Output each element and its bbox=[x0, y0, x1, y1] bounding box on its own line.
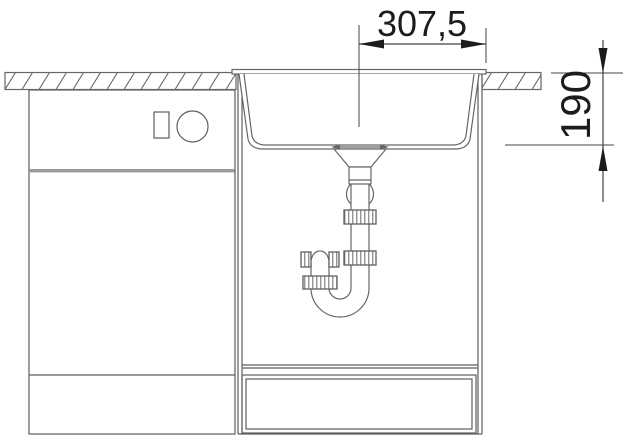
left-cabinet-door-divider bbox=[30, 169, 235, 172]
left-cabinet-outline bbox=[29, 90, 235, 434]
riser-dome-cap bbox=[311, 251, 329, 263]
countertop-right-section bbox=[482, 73, 541, 90]
drain-neck bbox=[349, 167, 371, 184]
outlet-pipe-body bbox=[351, 184, 369, 288]
plinth-panel-outer bbox=[242, 375, 476, 433]
drain-trap-assembly bbox=[301, 145, 389, 318]
pipe-nut-lower bbox=[344, 251, 376, 265]
dimension-label-bowl-depth: 190 bbox=[552, 70, 599, 140]
arrow-down-icon bbox=[599, 48, 608, 73]
trap-u-bend-inner bbox=[329, 288, 351, 299]
control-knob-icon bbox=[177, 111, 208, 142]
plinth-panel-inner bbox=[246, 379, 472, 429]
drain-funnel bbox=[334, 149, 386, 167]
drawing-canvas: 307,5 190 bbox=[0, 0, 625, 442]
riser-nut bbox=[303, 276, 337, 289]
countertop-left-section bbox=[5, 73, 236, 90]
pipe-nut-upper bbox=[344, 210, 376, 224]
control-rect-icon bbox=[154, 112, 169, 138]
dimension-bowl-depth: 190 bbox=[505, 40, 623, 202]
trap-u-bend-outer bbox=[311, 288, 369, 317]
sink-technical-drawing: 307,5 190 bbox=[0, 0, 625, 442]
arrow-up-icon bbox=[599, 146, 608, 171]
left-cabinet bbox=[29, 90, 235, 434]
dimension-label-half-width: 307,5 bbox=[377, 3, 467, 44]
